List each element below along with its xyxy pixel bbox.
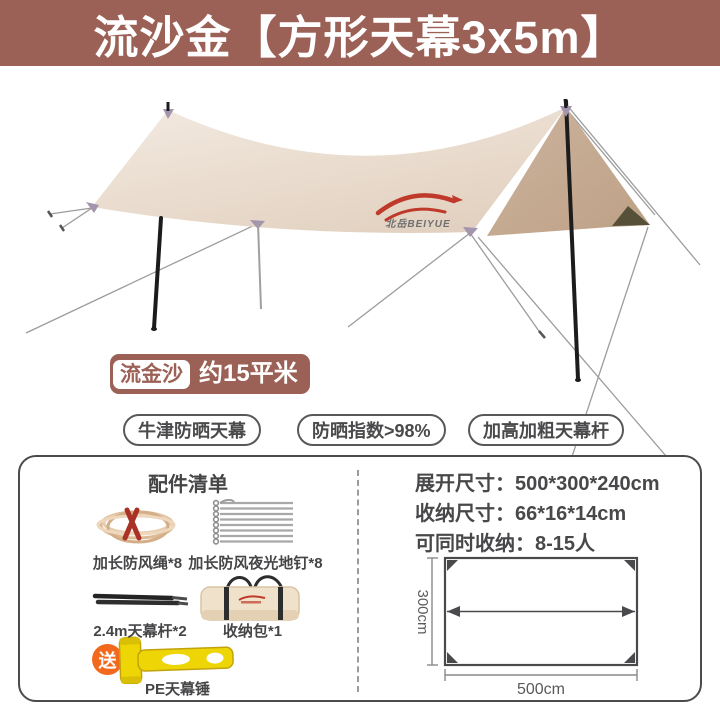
spec-packed-size: 收纳尺寸：66*16*14cm	[415, 497, 626, 526]
brand-logo-text: 北岳BEIYUE	[385, 218, 450, 230]
product-card: 流沙金【方形天幕3x5m】	[0, 0, 720, 720]
rope-icon	[95, 502, 180, 548]
feature-pill-poles: 加高加粗天幕杆	[468, 414, 624, 446]
accessories-title: 配件清单	[18, 468, 358, 497]
diagram-width-label: 500cm	[517, 681, 565, 698]
spec-open-size: 展开尺寸：500*300*240cm	[415, 467, 660, 496]
storage-bag-icon	[197, 572, 302, 622]
dimension-diagram: 300cm 500cm	[400, 552, 662, 700]
area-value: 约15平米	[199, 362, 298, 386]
dashed-divider	[357, 470, 359, 692]
accessory-label-bag: 收纳包*1	[185, 620, 320, 641]
accessory-label-stakes: 加长防风夜光地钉*8	[178, 552, 333, 573]
feature-pill-upf: 防晒指数>98%	[297, 414, 446, 446]
tarp-front-face	[92, 107, 566, 233]
accessory-label-hammer: PE天幕锤	[110, 678, 245, 699]
mid-tarp-pole	[258, 223, 261, 309]
variant-chip: 流金沙	[113, 360, 190, 389]
variant-area-badge: 流金沙 约15平米	[110, 354, 310, 394]
tarp-product-illustration: 北岳BEIYUE	[0, 75, 720, 515]
hammer-icon	[114, 634, 236, 684]
stakes-icon	[210, 499, 295, 545]
feature-pill-oxford: 牛津防晒天幕	[123, 414, 261, 446]
banner-title: 流沙金【方形天幕3x5m】	[93, 1, 626, 66]
banner: 流沙金【方形天幕3x5m】	[0, 0, 720, 66]
poles-icon	[92, 590, 190, 610]
diagram-height-label: 300cm	[414, 589, 431, 634]
left-tarp-pole	[154, 218, 161, 328]
